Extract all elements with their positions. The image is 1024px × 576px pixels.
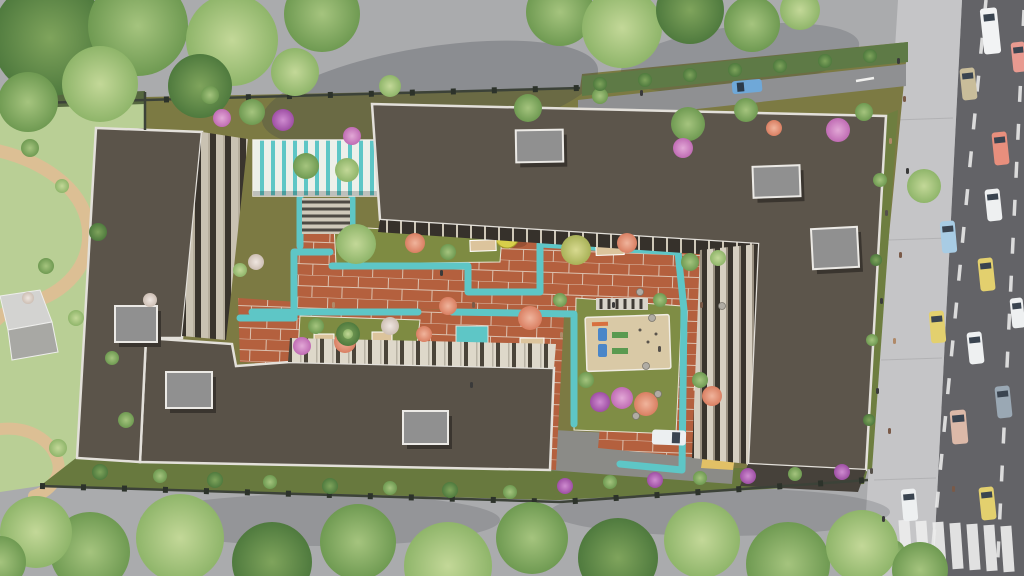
courtyard-bush bbox=[692, 372, 708, 388]
cafe-table bbox=[633, 413, 640, 420]
car-windshield bbox=[672, 432, 680, 443]
car-windshield bbox=[942, 226, 953, 233]
playground-slide-blue bbox=[598, 328, 607, 341]
strip-bush-lavender bbox=[647, 472, 663, 488]
strip-bush bbox=[603, 475, 617, 489]
hedge-bush bbox=[818, 54, 832, 68]
cafe-table bbox=[637, 289, 644, 296]
car-blue-driveway bbox=[732, 79, 763, 95]
tree-canopy bbox=[664, 502, 740, 576]
car-lightblue bbox=[940, 220, 958, 253]
person bbox=[470, 382, 473, 388]
courtyard-bush bbox=[248, 254, 264, 270]
person bbox=[952, 486, 955, 492]
courtyard-bush bbox=[308, 318, 324, 334]
courtyard-bush-salmon bbox=[518, 306, 542, 330]
person bbox=[889, 138, 892, 144]
tree-pink bbox=[343, 127, 361, 145]
cafe-table bbox=[649, 315, 656, 322]
courtyard-bush bbox=[381, 317, 399, 335]
park-bush bbox=[68, 310, 84, 326]
playground-pole bbox=[647, 341, 650, 344]
courtyard-bush-pink bbox=[293, 337, 311, 355]
person bbox=[870, 468, 873, 474]
roof-hatch bbox=[752, 165, 800, 198]
courtyard-bush-pink bbox=[611, 387, 633, 409]
tree-pink bbox=[673, 138, 693, 158]
person bbox=[899, 252, 902, 258]
person bbox=[700, 302, 703, 308]
tree bbox=[671, 107, 705, 141]
car-taxi-yellow bbox=[929, 310, 947, 343]
person bbox=[560, 332, 563, 338]
park-bush bbox=[89, 223, 107, 241]
strip-bush bbox=[873, 173, 887, 187]
courtyard-tree-yellow bbox=[561, 235, 591, 265]
park-bush bbox=[22, 292, 34, 304]
tree-purple bbox=[272, 109, 294, 131]
tree-salmon bbox=[766, 120, 782, 136]
person bbox=[658, 346, 661, 352]
courtyard-bush bbox=[553, 293, 567, 307]
person bbox=[903, 96, 906, 102]
person bbox=[612, 302, 615, 308]
courtyard-bush-sage bbox=[336, 224, 376, 264]
park-bush bbox=[21, 139, 39, 157]
car-windshield bbox=[981, 491, 993, 498]
courtyard-bush bbox=[681, 253, 699, 271]
strip-bush bbox=[442, 482, 458, 498]
strip-bush bbox=[863, 414, 875, 426]
strip-bush bbox=[866, 334, 878, 346]
person bbox=[885, 210, 888, 216]
playground-balance-beam bbox=[592, 322, 608, 327]
cafe-table bbox=[643, 363, 650, 370]
car-windshield bbox=[997, 390, 1009, 397]
bench bbox=[470, 240, 496, 252]
car-windshield bbox=[969, 336, 981, 343]
playground-pole bbox=[639, 329, 642, 332]
tree-pink bbox=[826, 118, 850, 142]
car-windshield bbox=[980, 262, 992, 269]
tree bbox=[379, 75, 401, 97]
park-bush bbox=[49, 439, 67, 457]
palm-tree-center bbox=[343, 329, 353, 339]
playground-slide-blue bbox=[598, 344, 607, 357]
playground-bench-green bbox=[612, 348, 628, 354]
tree bbox=[734, 98, 758, 122]
roof-hatch bbox=[516, 130, 564, 163]
tree-canopy bbox=[62, 46, 138, 122]
person bbox=[897, 58, 900, 64]
park-bush bbox=[38, 258, 54, 274]
roof-hatch bbox=[811, 227, 859, 269]
person bbox=[882, 516, 885, 522]
pergola-tree bbox=[335, 158, 359, 182]
aerial-render-stage bbox=[0, 0, 1024, 576]
strip-bush-lavender bbox=[834, 464, 850, 480]
person bbox=[893, 338, 896, 344]
strip-bush bbox=[322, 478, 338, 494]
tree-canopy bbox=[271, 48, 319, 96]
courtyard-bush-salmon bbox=[617, 233, 637, 253]
courtyard-bush bbox=[578, 372, 594, 388]
person bbox=[640, 90, 643, 96]
hedge-bush bbox=[863, 49, 877, 63]
car-windshield bbox=[962, 72, 974, 79]
roof-hatch bbox=[166, 372, 212, 408]
strip-bush-lavender bbox=[557, 478, 573, 494]
scene-svg bbox=[0, 0, 1024, 576]
playground-pole bbox=[655, 333, 658, 336]
pergola-tree bbox=[293, 153, 319, 179]
strip-bush bbox=[693, 471, 707, 485]
tree-pink bbox=[213, 109, 231, 127]
person bbox=[472, 302, 475, 308]
car-windshield bbox=[1012, 303, 1022, 310]
courtyard-bush bbox=[440, 244, 456, 260]
car-pinkbeige bbox=[950, 409, 969, 444]
roof-hatch bbox=[403, 411, 448, 444]
car-white bbox=[901, 488, 919, 521]
strip-bush bbox=[207, 472, 223, 488]
tree bbox=[201, 86, 219, 104]
cafe-table bbox=[719, 303, 726, 310]
car-windshield bbox=[931, 316, 942, 323]
person bbox=[332, 302, 335, 308]
cafe-table bbox=[655, 391, 662, 398]
tree bbox=[855, 103, 873, 121]
tree-canopy bbox=[168, 54, 232, 118]
park-bush bbox=[143, 293, 157, 307]
car-van-windshield bbox=[983, 13, 995, 21]
person bbox=[880, 298, 883, 304]
strip-bush bbox=[92, 464, 108, 480]
person bbox=[876, 388, 879, 394]
strip-bush bbox=[503, 485, 517, 499]
building-facade-east-wing-west-face bbox=[692, 244, 758, 464]
park-bush bbox=[105, 351, 119, 365]
car-white-courtyard bbox=[652, 429, 687, 445]
sidewalk-tree bbox=[907, 169, 941, 203]
car-windshield bbox=[952, 415, 965, 423]
playground-bench-green bbox=[612, 332, 628, 338]
courtyard-bush-salmon bbox=[405, 233, 425, 253]
tree bbox=[514, 94, 542, 122]
park-bush bbox=[55, 179, 69, 193]
strip-bush-lavender bbox=[740, 468, 756, 484]
car-windshield bbox=[994, 136, 1006, 143]
courtyard-bush bbox=[710, 250, 726, 266]
courtyard-bush-salmon bbox=[634, 392, 658, 416]
person bbox=[906, 168, 909, 174]
courtyard-bush-salmon bbox=[416, 326, 432, 342]
pergola-shadow-edge bbox=[253, 191, 389, 196]
hedge-bush bbox=[728, 63, 742, 77]
pergola-slats bbox=[253, 140, 389, 196]
tree-canopy bbox=[496, 502, 568, 574]
strip-bush bbox=[263, 475, 277, 489]
courtyard-bush-purple bbox=[590, 392, 610, 412]
courtyard-bush-salmon bbox=[439, 297, 457, 315]
strip-bush bbox=[788, 467, 802, 481]
strip-bush bbox=[383, 481, 397, 495]
tree-canopy bbox=[0, 72, 58, 132]
car-windshield bbox=[737, 82, 745, 92]
hedge-bush bbox=[773, 59, 787, 73]
car-windshield bbox=[903, 494, 914, 501]
park-bush bbox=[118, 412, 134, 428]
tree bbox=[239, 99, 265, 125]
hedge-bush bbox=[638, 73, 652, 87]
roof-hatch bbox=[115, 306, 157, 342]
courtyard-bush bbox=[653, 293, 667, 307]
person bbox=[440, 270, 443, 276]
strip-bush bbox=[870, 254, 882, 266]
car-windshield bbox=[987, 193, 999, 200]
car-windshield bbox=[1013, 47, 1024, 54]
strip-bush bbox=[153, 469, 167, 483]
person bbox=[888, 428, 891, 434]
hedge-bush bbox=[683, 68, 697, 82]
courtyard-bush-salmon bbox=[702, 386, 722, 406]
courtyard-bush bbox=[233, 263, 247, 277]
hedge-bush bbox=[593, 77, 607, 91]
